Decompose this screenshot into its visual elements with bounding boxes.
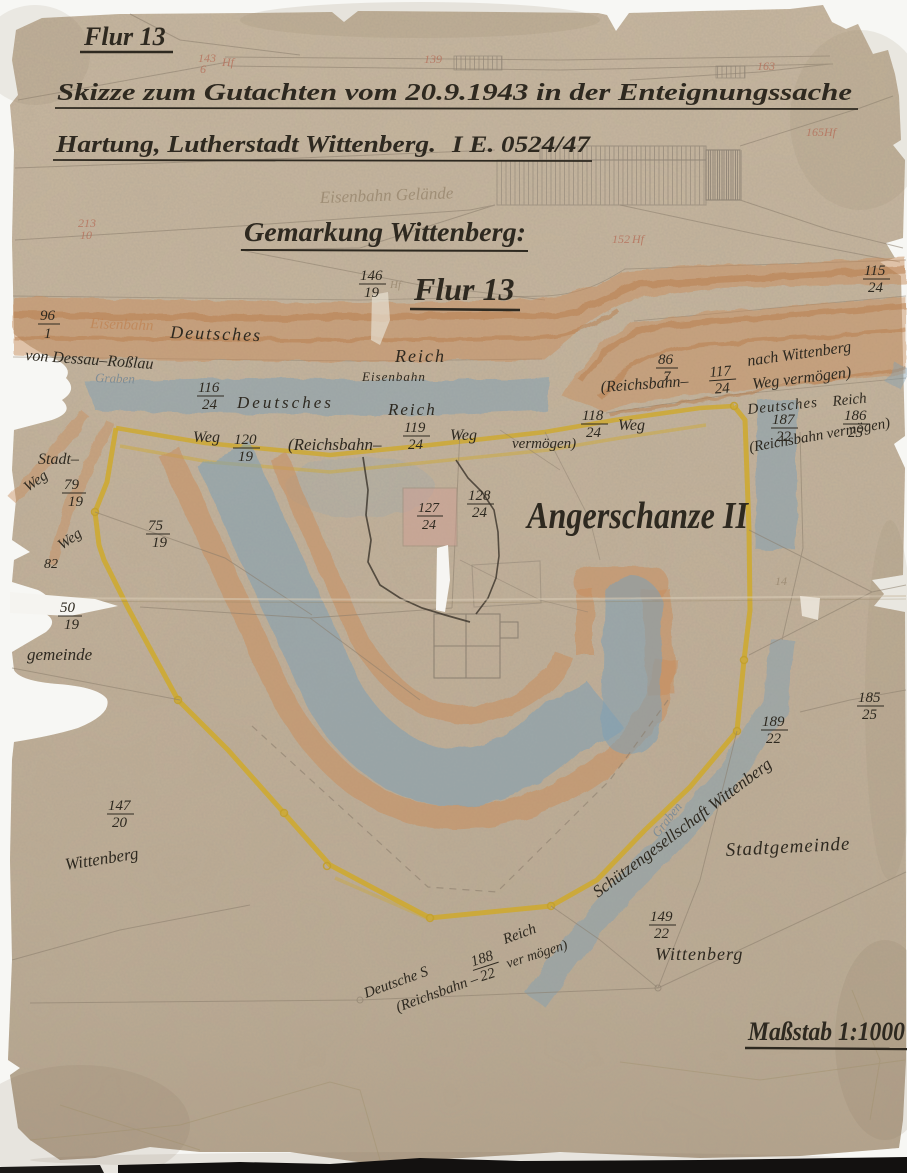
svg-text:119: 119 <box>404 420 426 436</box>
svg-text:187: 187 <box>772 412 796 428</box>
svg-text:118: 118 <box>582 408 604 424</box>
svg-text:146: 146 <box>360 268 383 284</box>
svg-text:50: 50 <box>60 600 76 616</box>
svg-text:Hartung, Lutherstadt Wittenber: Hartung, Lutherstadt Wittenberg. <box>55 132 436 158</box>
svg-text:Stadt–: Stadt– <box>38 451 80 468</box>
svg-text:165: 165 <box>806 125 824 139</box>
svg-text:vermögen): vermögen) <box>512 436 576 452</box>
svg-text:Hf: Hf <box>631 232 646 246</box>
svg-text:147: 147 <box>108 798 132 814</box>
svg-text:Gemarkung Wittenberg:: Gemarkung Wittenberg: <box>244 217 526 247</box>
svg-text:Flur 13: Flur 13 <box>413 271 514 307</box>
svg-text:185: 185 <box>858 690 881 706</box>
svg-text:I E. 0524/47: I E. 0524/47 <box>451 132 592 157</box>
svg-text:19: 19 <box>64 617 80 633</box>
svg-text:117: 117 <box>709 363 733 381</box>
svg-text:19: 19 <box>68 494 84 510</box>
svg-text:Reich: Reich <box>387 400 437 419</box>
svg-text:163: 163 <box>757 59 775 73</box>
svg-text:Hf: Hf <box>823 125 838 139</box>
svg-text:24: 24 <box>714 380 731 397</box>
svg-text:24: 24 <box>202 397 218 413</box>
svg-text:24: 24 <box>408 437 424 453</box>
svg-text:22: 22 <box>654 926 670 942</box>
svg-text:115: 115 <box>864 263 886 279</box>
svg-text:14: 14 <box>775 574 787 588</box>
svg-text:Reich: Reich <box>394 346 446 366</box>
svg-text:128: 128 <box>468 488 491 504</box>
svg-text:Wittenberg: Wittenberg <box>655 944 743 964</box>
svg-text:24: 24 <box>422 518 436 533</box>
svg-text:139: 139 <box>424 52 442 66</box>
svg-text:gemeinde: gemeinde <box>27 645 93 664</box>
svg-text:24: 24 <box>472 505 488 521</box>
svg-text:10: 10 <box>80 228 92 242</box>
svg-text:19: 19 <box>238 449 254 465</box>
svg-text:19: 19 <box>152 535 168 551</box>
svg-text:86: 86 <box>658 352 674 368</box>
svg-text:Weg: Weg <box>450 427 477 444</box>
svg-text:152: 152 <box>612 232 630 246</box>
svg-text:Angerschanze II: Angerschanze II <box>525 495 749 537</box>
svg-text:Eisenbahn: Eisenbahn <box>361 369 426 384</box>
svg-text:1: 1 <box>44 326 52 342</box>
svg-text:116: 116 <box>198 380 220 396</box>
svg-text:Weg: Weg <box>193 429 220 446</box>
svg-text:189: 189 <box>762 714 785 730</box>
svg-text:24: 24 <box>586 425 602 441</box>
svg-text:Deutsches: Deutsches <box>236 393 334 412</box>
svg-text:127: 127 <box>418 501 440 516</box>
svg-text:20: 20 <box>112 815 128 831</box>
svg-text:6: 6 <box>200 62 206 76</box>
svg-text:149: 149 <box>650 909 673 925</box>
svg-text:19: 19 <box>364 285 380 301</box>
svg-text:25: 25 <box>862 707 878 723</box>
svg-text:Hf: Hf <box>389 279 403 291</box>
svg-text:82: 82 <box>44 557 58 572</box>
svg-text:Deutsches: Deutsches <box>169 322 263 345</box>
svg-text:Flur 13: Flur 13 <box>83 22 166 51</box>
svg-text:75: 75 <box>148 518 164 534</box>
svg-text:Weg: Weg <box>618 417 645 434</box>
svg-text:Graben: Graben <box>95 370 135 386</box>
svg-text:(Reichsbahn–: (Reichsbahn– <box>288 435 382 454</box>
svg-text:79: 79 <box>64 477 80 493</box>
svg-text:Maßstab 1:1000: Maßstab 1:1000 <box>747 1017 905 1046</box>
svg-text:Hf: Hf <box>221 55 236 69</box>
svg-text:24: 24 <box>868 280 884 296</box>
svg-text:22: 22 <box>766 731 782 747</box>
svg-text:96: 96 <box>40 308 56 324</box>
svg-text:Skizze zum Gutachten vom 20.9.: Skizze zum Gutachten vom 20.9.1943 in de… <box>57 80 852 106</box>
svg-text:Eisenbahn: Eisenbahn <box>89 316 154 334</box>
svg-text:120: 120 <box>234 432 257 448</box>
